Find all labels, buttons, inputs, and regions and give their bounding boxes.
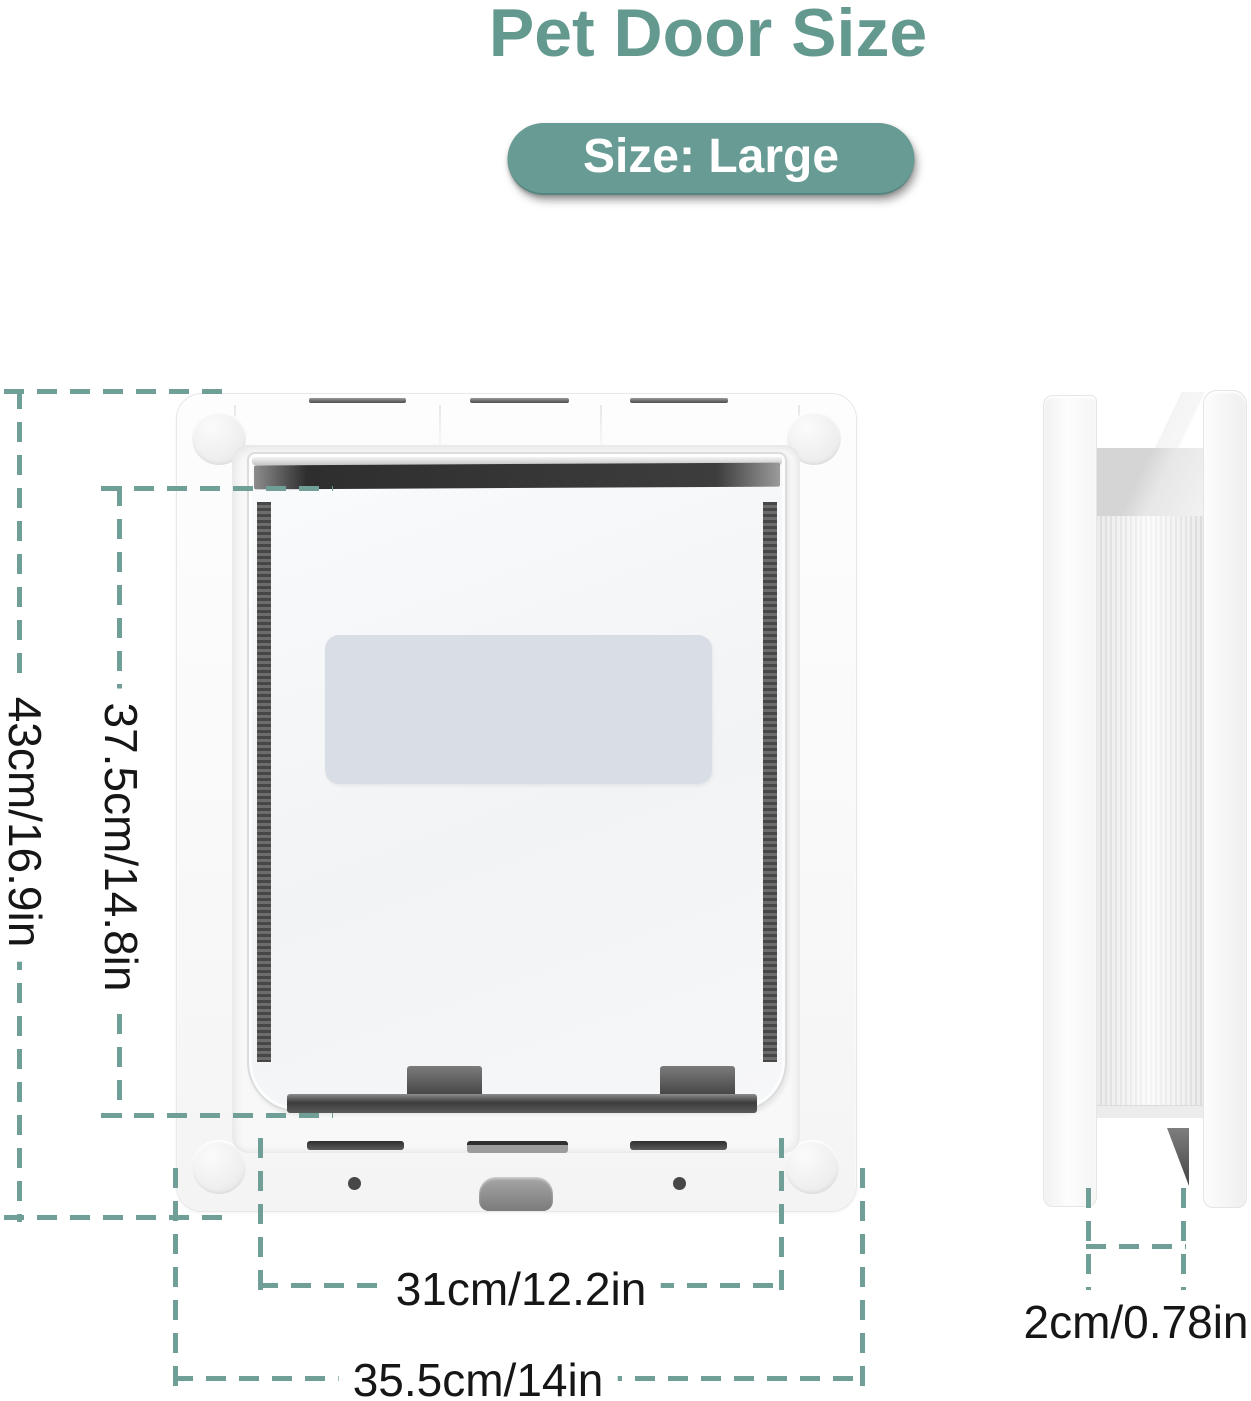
flap-width-extension-right [779,1138,784,1301]
flap-side-seal-left [257,502,271,1062]
outer-height-extension-bottom [4,1215,232,1220]
outer-width-label: 35.5cm/14in [339,1349,618,1401]
outer-width-extension-right [860,1168,865,1398]
flap-height-label: 37.5cm/14.8in [90,689,152,1006]
bottom-latch-slot [467,1141,568,1153]
outer-height-extension-top [4,389,226,394]
pet-door-side-view [1035,388,1247,1210]
lock-knob [479,1177,553,1211]
flap-side-seal-right [763,502,777,1062]
thickness-extension-right [1181,1188,1186,1290]
flap-height-extension-top [101,486,333,491]
flap-bottom-seal [287,1094,757,1113]
side-flange-left [1043,395,1097,1207]
top-vent-slot [309,398,406,403]
thickness-dimension-line [1086,1244,1186,1249]
side-ribbed-tunnel [1095,516,1205,1105]
side-hinge-housing [1095,448,1205,516]
page-title: Pet Door Size [489,0,927,72]
side-flange-right [1203,390,1247,1208]
bottom-vent-slot [307,1141,404,1150]
top-vent-slot [470,398,569,403]
size-badge: Size: Large [508,123,915,195]
side-tunnel-end [1095,1105,1205,1118]
flap-label-area [325,635,712,784]
flap-width-label: 31cm/12.2in [382,1258,661,1320]
outer-width-extension-left [173,1168,178,1398]
pet-door-front-view [176,393,857,1212]
side-shadow-wedge [1167,1128,1189,1186]
flap-height-extension-bottom [101,1113,333,1118]
thickness-label: 2cm/0.78in [1009,1291,1251,1353]
side-flap-edge [1153,392,1205,452]
outer-height-label: 43cm/16.9in [0,683,56,962]
screw-hole [673,1177,686,1190]
transparent-flap-panel [247,452,787,1112]
thickness-extension-left [1086,1188,1091,1290]
top-vent-slot [630,398,728,403]
bottom-vent-slot [630,1141,727,1150]
screw-hole [348,1177,361,1190]
flap-width-extension-left [258,1138,263,1301]
pet-door-size-infographic: Pet Door Size Size: Large [0,0,1251,1401]
